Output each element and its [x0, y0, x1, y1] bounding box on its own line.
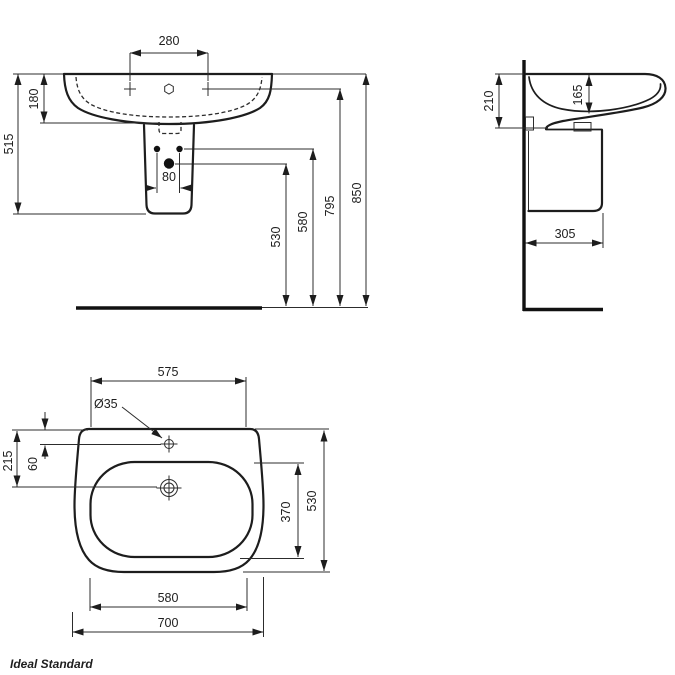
dim-label-tap-spacing: 280	[159, 34, 180, 48]
dim-label-front-depth: 210	[482, 91, 496, 112]
dim-label-overall-depth: 530	[305, 491, 319, 512]
dim-label-fixing-spacing: 80	[162, 170, 176, 184]
overflow-hole	[165, 84, 174, 94]
fixing-hole-right	[176, 146, 182, 152]
bowl-inner-profile	[529, 77, 661, 111]
basin-outline	[64, 74, 272, 124]
dim-label-bowl-inner-depth: 165	[571, 85, 585, 106]
technical-drawing-sheet: 280 80 515 180 530 580 795 850	[0, 0, 675, 675]
plan-tap-hole	[161, 436, 178, 453]
plan-view: Ø35 575 215 60 370 530 580	[1, 365, 330, 637]
dim-label-pedestal-depth: 305	[555, 227, 576, 241]
dim-label-tap-offset: 60	[26, 457, 40, 471]
brand-logo: Ideal Standard	[10, 657, 93, 671]
dim-label-siphon-height: 530	[269, 227, 283, 248]
tap-hole-marker-left	[124, 82, 136, 96]
dim-label-fixing-height: 580	[296, 212, 310, 233]
tap-hole-marker-right	[202, 82, 214, 96]
dia-leader-arrow	[122, 407, 162, 438]
dim-label-front-width: 580	[158, 591, 179, 605]
dim-label-overall-width: 700	[158, 616, 179, 630]
dim-label-back-width: 575	[158, 365, 179, 379]
dim-label-bowl-length: 370	[279, 502, 293, 523]
dim-label-overall-height: 850	[350, 183, 364, 204]
dim-label-drain-offset: 215	[1, 451, 15, 472]
bowl-hidden-edge	[76, 77, 262, 117]
basin-dimension-drawing: 280 80 515 180 530 580 795 850	[0, 0, 675, 675]
dim-label-height-left: 515	[2, 134, 16, 155]
waste-outlet-hole	[164, 158, 174, 168]
side-view: 210 165 305	[482, 60, 666, 311]
dim-label-bowl-depth: 180	[27, 89, 41, 110]
fixing-hole-left	[154, 146, 160, 152]
plan-drain-hole	[157, 476, 182, 501]
pedestal-side-outline	[529, 130, 603, 211]
plan-bowl-outline	[91, 462, 253, 557]
dim-label-tap-hole-dia: Ø35	[94, 397, 118, 411]
dim-label-tap-height: 795	[323, 196, 337, 217]
front-view: 280 80 515 180 530 580 795 850	[2, 34, 368, 308]
